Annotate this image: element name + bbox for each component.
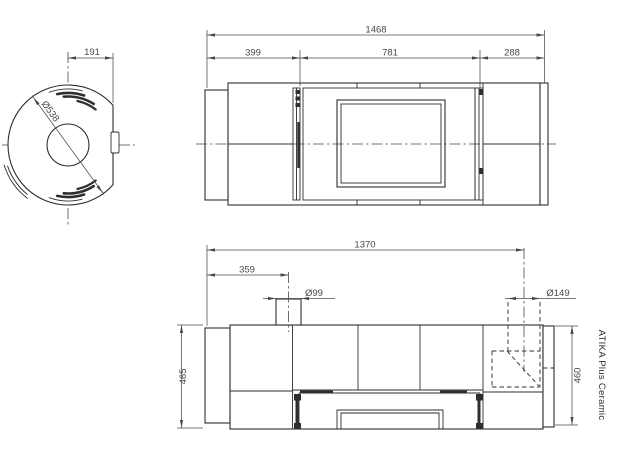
dim-label-left-section: 399	[245, 48, 261, 59]
top-view: 191 Ø538	[2, 47, 135, 226]
front-view-dimensions: 1468 399 781 288	[207, 25, 545, 89]
stove-dimension-drawing: 191 Ø538	[0, 0, 624, 460]
dim-label-height-left: 465	[178, 369, 189, 385]
technical-drawing-canvas: 191 Ø538	[0, 0, 624, 460]
dim-label-right-section: 288	[504, 48, 520, 59]
dim-label-rear-flue-distance: 1370	[354, 240, 375, 251]
side-right-end-cap	[543, 326, 554, 427]
front-view: 1468 399 781 288	[196, 25, 556, 206]
dim-label-flue-offset: 191	[84, 47, 100, 58]
dim-label-top-flue-distance: 359	[239, 265, 255, 276]
side-bracket	[111, 132, 119, 153]
product-name: ATIKA Plus Ceramic	[596, 330, 607, 421]
side-left-end-cap	[205, 328, 230, 423]
side-view: 1370 359 Ø99 Ø149 465 460	[177, 240, 584, 430]
front-left-end-cap	[205, 90, 228, 200]
dim-label-door-section: 781	[382, 48, 398, 59]
dim-label-rear-flue-diameter: Ø149	[546, 288, 569, 299]
dim-label-overall-width: 1468	[365, 25, 386, 36]
dim-label-top-flue-diameter: Ø99	[305, 288, 323, 299]
dim-label-height-right: 460	[573, 368, 584, 384]
